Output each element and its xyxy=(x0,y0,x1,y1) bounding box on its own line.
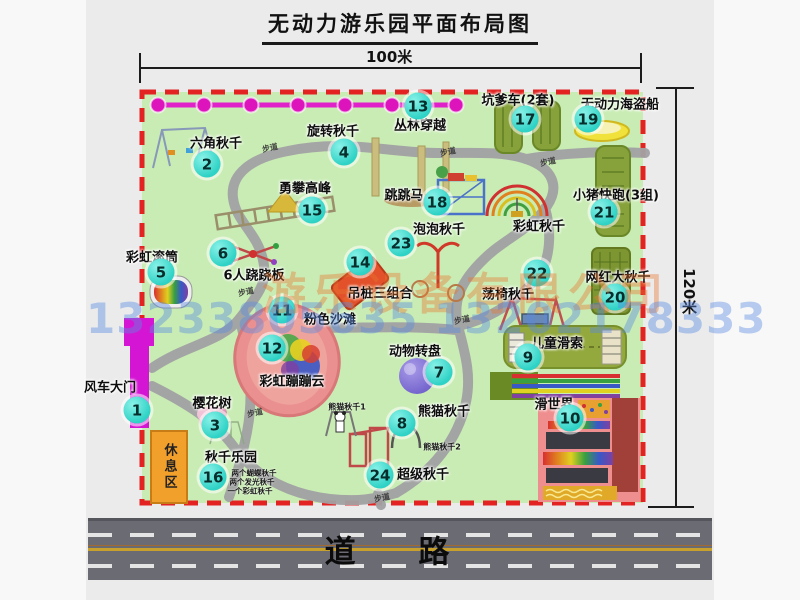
facility-badge-15: 15 xyxy=(299,197,326,224)
facility-label-6: 6人跷跷板 xyxy=(223,265,284,284)
facility-badge-10: 10 xyxy=(557,405,584,432)
facility-badge-12: 12 xyxy=(259,335,286,362)
dim-right-tick-top xyxy=(656,87,694,89)
road-label: 道 路 xyxy=(325,526,476,571)
sub-label-4: 一个彩虹秋千 xyxy=(228,486,273,497)
facility-badge-16: 16 xyxy=(200,464,227,491)
facility-label-21: 小猪快跑(3组) xyxy=(573,185,659,204)
facility-label-4: 旋转秋千 xyxy=(307,121,359,140)
facility-badge-6: 6 xyxy=(210,240,237,267)
sub-label-1: 熊猫秋千2 xyxy=(423,442,461,453)
page-title: 无动力游乐园平面布局图 xyxy=(262,8,538,45)
facility-badge-17: 17 xyxy=(512,106,539,133)
sub-label-0: 熊猫秋千1 xyxy=(328,402,366,413)
dim-top-tick-right xyxy=(640,53,642,83)
facility-label-20: 网红大秋千 xyxy=(585,267,650,286)
facility-badge-24: 24 xyxy=(367,462,394,489)
facility-label-24: 超级秋千 xyxy=(397,464,449,483)
facility-badge-22: 22 xyxy=(524,260,551,287)
facility-badge-11: 11 xyxy=(269,297,296,324)
facility-label-22: 荡椅秋千 xyxy=(482,284,534,303)
facility-label-18: 跳跳马 xyxy=(384,185,423,204)
facility-label-rainbow-swing: 彩虹秋千 xyxy=(513,216,565,235)
facility-badge-19: 19 xyxy=(575,106,602,133)
facility-badge-13: 13 xyxy=(405,93,432,120)
facility-badge-4: 4 xyxy=(331,139,358,166)
facility-label-17: 坑爹车(2套) xyxy=(482,90,555,109)
rest-area: 休息区 xyxy=(150,430,188,504)
screenshot-stage: 无动力游乐园平面布局图 100米 120米 xyxy=(0,0,800,600)
facility-label-11: 粉色沙滩 xyxy=(304,309,356,328)
facility-badge-14: 14 xyxy=(347,249,374,276)
facility-badge-7: 7 xyxy=(426,359,453,386)
facility-label-23: 泡泡秋千 xyxy=(413,219,465,238)
facility-badge-5: 5 xyxy=(148,259,175,286)
facility-label-12: 彩虹蹦蹦云 xyxy=(259,371,324,390)
facility-label-15: 勇攀高峰 xyxy=(279,178,331,197)
facility-label-7: 动物转盘 xyxy=(389,341,441,360)
facility-badge-18: 18 xyxy=(424,189,451,216)
facility-badge-8: 8 xyxy=(389,410,416,437)
facility-label-1: 风车大门 xyxy=(84,377,136,396)
facility-badge-9: 9 xyxy=(515,344,542,371)
rest-area-label: 休息区 xyxy=(160,443,179,491)
facility-badge-1: 1 xyxy=(124,397,151,424)
facility-badge-23: 23 xyxy=(388,230,415,257)
facility-label-14: 吊桩三组合 xyxy=(347,283,412,302)
dim-right-tick-bottom xyxy=(648,506,694,508)
facility-badge-3: 3 xyxy=(202,412,229,439)
facility-badge-20: 20 xyxy=(602,284,629,311)
facility-label-3: 樱花树 xyxy=(192,393,231,412)
dim-width-label: 100米 xyxy=(366,46,412,67)
road: 道 路 xyxy=(88,518,712,580)
dim-top-tick-left xyxy=(139,53,141,83)
dim-height-label: 120米 xyxy=(679,268,700,314)
dim-top-line xyxy=(140,67,642,69)
facility-badge-2: 2 xyxy=(194,151,221,178)
dim-right-line xyxy=(675,88,677,507)
facility-label-2: 六角秋千 xyxy=(190,133,242,152)
facility-label-8: 熊猫秋千 xyxy=(418,401,470,420)
facility-badge-21: 21 xyxy=(591,199,618,226)
